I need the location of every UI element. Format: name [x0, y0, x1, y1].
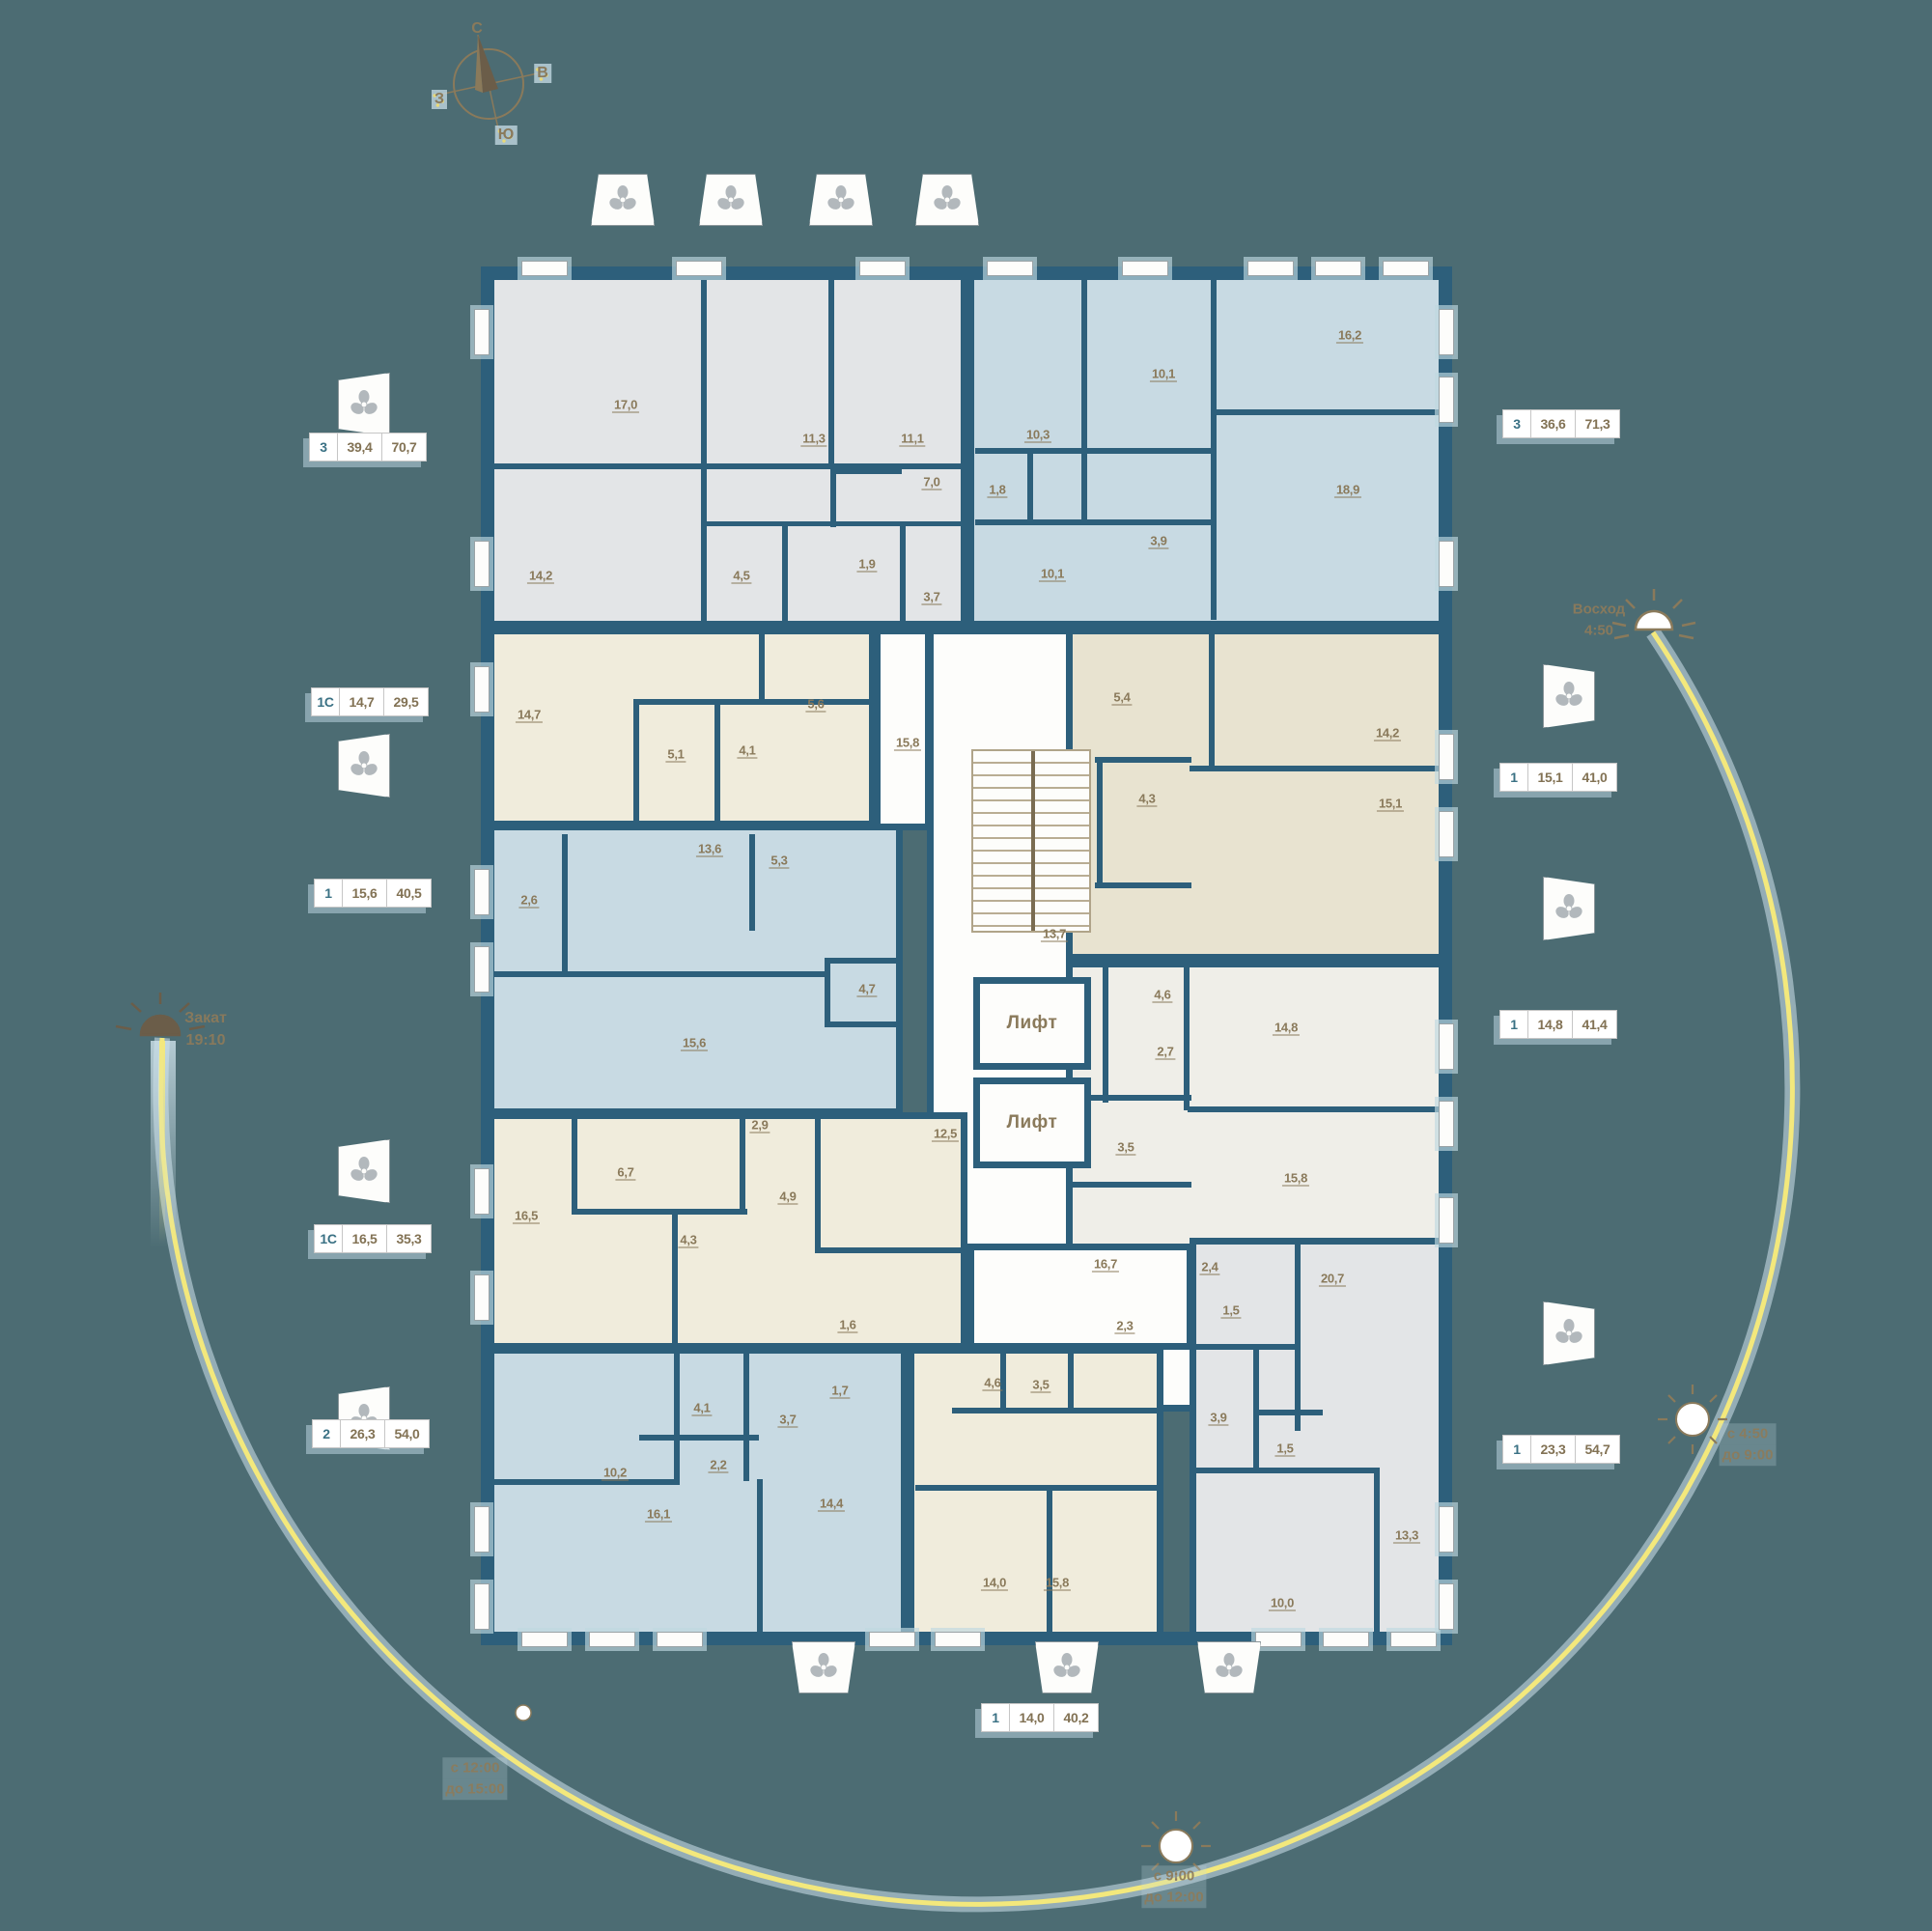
- room-area-label: 14,4: [818, 1497, 845, 1512]
- room-area-label: 14,7: [516, 709, 543, 723]
- apartment-type-label: 1С: [315, 1225, 342, 1252]
- living-area-value: 39,4: [337, 434, 381, 461]
- apartment-badge: 114,841,4: [1499, 1010, 1617, 1039]
- room-area-label: 15,8: [1282, 1172, 1309, 1187]
- window: [1122, 261, 1168, 276]
- fan-icon: [1543, 877, 1595, 940]
- window: [474, 869, 490, 915]
- apartment-type-label: 1: [1500, 764, 1527, 791]
- room-area-label: 4,7: [856, 983, 877, 997]
- window: [987, 261, 1033, 276]
- total-area-value: 40,2: [1053, 1704, 1098, 1731]
- window: [474, 666, 490, 713]
- fan-icon: [792, 1641, 855, 1693]
- apartment-type-label: 1: [315, 880, 342, 907]
- room-area-label: 2,6: [518, 894, 539, 909]
- total-area-value: 71,3: [1575, 410, 1619, 437]
- window: [474, 1583, 490, 1630]
- floor-plan-canvas: ЛифтЛифт17,011,311,17,014,24,51,93,710,3…: [0, 0, 1932, 1931]
- room-area-label: 4,3: [1136, 793, 1157, 807]
- window: [1383, 261, 1429, 276]
- apartment-type-label: 1С: [312, 688, 339, 715]
- fan-icon: [1035, 1641, 1099, 1693]
- compass-south-label: Ю: [495, 126, 518, 145]
- living-area-value: 36,6: [1530, 410, 1575, 437]
- room-area-label: 14,2: [527, 570, 554, 584]
- total-area-value: 54,0: [384, 1420, 429, 1447]
- room-area-label: 3,7: [921, 591, 941, 605]
- fan-icon: [338, 373, 390, 436]
- room-area-label: 10,1: [1039, 568, 1066, 582]
- room-area-label: 5,1: [665, 748, 686, 763]
- apartment-type-label: 1: [1503, 1436, 1530, 1463]
- window: [1439, 1197, 1454, 1244]
- room-area-label: 4,9: [777, 1190, 798, 1205]
- room-area-label: 14,0: [981, 1577, 1008, 1591]
- total-area-value: 41,0: [1572, 764, 1616, 791]
- room-area-label: 2,7: [1155, 1046, 1175, 1060]
- room-area-label: 11,1: [899, 433, 925, 447]
- living-area-value: 23,3: [1530, 1436, 1575, 1463]
- room-area-label: 5,4: [1111, 691, 1132, 706]
- room-area-label: 16,2: [1336, 329, 1363, 344]
- room-area-label: 1,7: [829, 1385, 850, 1399]
- window: [869, 1632, 915, 1647]
- room-area-label: 5,6: [805, 698, 826, 713]
- room-area-label: 16,1: [645, 1508, 672, 1523]
- apartment-badge: 1С16,535,3: [314, 1224, 432, 1253]
- apartment-type-label: 1: [1500, 1011, 1527, 1038]
- sun-interval-morning: с 4:50до 9:00: [1720, 1423, 1777, 1466]
- apartment-type-label: 3: [1503, 410, 1530, 437]
- apartment-badge: 115,640,5: [314, 879, 432, 908]
- fan-icon: [1543, 664, 1595, 728]
- room-area-label: 1,5: [1220, 1304, 1241, 1319]
- fan-icon: [699, 174, 763, 226]
- total-area-value: 29,5: [383, 688, 428, 715]
- total-area-value: 54,7: [1575, 1436, 1619, 1463]
- window: [1439, 1583, 1454, 1630]
- room-area-label: 4,1: [691, 1402, 712, 1416]
- apartment-badge: 226,354,0: [312, 1419, 430, 1448]
- room-area-label: 10,1: [1150, 368, 1177, 382]
- window: [1255, 1632, 1302, 1647]
- room-area-label: 15,8: [1044, 1577, 1071, 1591]
- room-area-label: 4,6: [982, 1377, 1002, 1391]
- room-area-label: 10,2: [602, 1467, 629, 1481]
- total-area-value: 40,5: [386, 880, 431, 907]
- window: [1323, 1632, 1369, 1647]
- window: [1439, 1023, 1454, 1070]
- room-area-label: 1,9: [856, 558, 877, 573]
- room-area-label: 15,8: [894, 737, 921, 751]
- room-area-label: 17,0: [612, 399, 639, 413]
- room-area-label: 2,3: [1114, 1320, 1134, 1334]
- fan-icon: [809, 174, 873, 226]
- living-area-value: 15,1: [1527, 764, 1572, 791]
- window: [1247, 261, 1294, 276]
- room-area-label: 12,5: [932, 1128, 959, 1142]
- window: [1439, 1506, 1454, 1553]
- room-area-label: 16,7: [1092, 1258, 1119, 1273]
- window: [1439, 377, 1454, 423]
- window: [1439, 734, 1454, 780]
- apartment-badge: 115,141,0: [1499, 763, 1617, 792]
- apartment-badge: 339,470,7: [309, 433, 427, 462]
- window: [1439, 541, 1454, 587]
- compass-west-label: З: [432, 90, 447, 109]
- room-area-label: 16,5: [513, 1210, 540, 1224]
- room-area-label: 10,0: [1269, 1597, 1296, 1611]
- sunset-ray-glow: [151, 1041, 176, 1248]
- room-area-label: 1,5: [1274, 1442, 1295, 1457]
- total-area-value: 35,3: [386, 1225, 431, 1252]
- room-area-label: 20,7: [1319, 1273, 1346, 1287]
- living-area-value: 26,3: [340, 1420, 384, 1447]
- room-area-label: 4,1: [737, 744, 757, 759]
- sunset-label: Закат19:10: [184, 1007, 227, 1051]
- sunrise-label: Восход4:50: [1573, 599, 1625, 641]
- fan-icon: [1543, 1301, 1595, 1365]
- living-area-value: 14,7: [339, 688, 383, 715]
- room-area-label: 5,3: [769, 854, 789, 869]
- window: [1439, 309, 1454, 355]
- room-area-label: 1,8: [987, 484, 1007, 498]
- room-area-label: 3,9: [1208, 1412, 1228, 1426]
- window: [521, 1632, 568, 1647]
- room-area-label: 3,5: [1030, 1379, 1050, 1393]
- fan-icon: [915, 174, 979, 226]
- room-area-label: 2,4: [1199, 1261, 1219, 1275]
- apartment-badge: 114,040,2: [981, 1703, 1099, 1732]
- fan-icon: [338, 1139, 390, 1203]
- room-area-label: 7,0: [921, 476, 941, 490]
- fan-icon: [1197, 1641, 1261, 1693]
- living-area-value: 14,0: [1009, 1704, 1053, 1731]
- window: [676, 261, 722, 276]
- window: [1390, 1632, 1437, 1647]
- window: [657, 1632, 703, 1647]
- room-area-label: 2,2: [708, 1459, 728, 1473]
- window: [474, 946, 490, 993]
- room-area-label: 13,7: [1041, 928, 1068, 942]
- apartment-badge: 1С14,729,5: [311, 687, 429, 716]
- compass-east-label: В: [534, 64, 551, 83]
- room-area-label: 6,7: [615, 1166, 635, 1181]
- apartment-badge: 123,354,7: [1502, 1435, 1620, 1464]
- room-area-label: 4,5: [731, 570, 751, 584]
- room-area-label: 18,9: [1334, 484, 1361, 498]
- sun-interval-afternoon: с 12:00до 15:00: [442, 1757, 507, 1800]
- window: [589, 1632, 635, 1647]
- fan-icon: [591, 174, 655, 226]
- room-area-label: 3,9: [1148, 535, 1168, 549]
- compass-north-label: С: [468, 19, 486, 39]
- room-area-label: 13,3: [1393, 1529, 1420, 1544]
- room-area-label: 14,8: [1273, 1021, 1300, 1036]
- apartment-type-label: 3: [310, 434, 337, 461]
- building-outer-wall: [481, 266, 1452, 1645]
- window: [859, 261, 906, 276]
- window: [521, 261, 568, 276]
- sunset-ray: [159, 1041, 165, 1244]
- window: [474, 309, 490, 355]
- window: [935, 1632, 981, 1647]
- apartment-badge: 336,671,3: [1502, 409, 1620, 438]
- sun-interval-midday: с 9:00до 12:00: [1141, 1865, 1206, 1908]
- apartment-type-label: 1: [982, 1704, 1009, 1731]
- apartment-type-label: 2: [313, 1420, 340, 1447]
- room-area-label: 3,5: [1115, 1141, 1135, 1156]
- room-area-label: 4,6: [1152, 989, 1172, 1003]
- living-area-value: 15,6: [342, 880, 386, 907]
- window: [1315, 261, 1361, 276]
- sun-dot-icon: [516, 1705, 531, 1721]
- living-area-value: 16,5: [342, 1225, 386, 1252]
- window: [474, 1506, 490, 1553]
- window: [1439, 811, 1454, 857]
- window: [474, 541, 490, 587]
- total-area-value: 70,7: [381, 434, 426, 461]
- room-area-label: 1,6: [837, 1319, 857, 1333]
- room-area-label: 15,6: [681, 1037, 708, 1051]
- window: [474, 1168, 490, 1215]
- compass-icon: [439, 35, 538, 133]
- window: [474, 1274, 490, 1321]
- window: [1439, 1101, 1454, 1147]
- room-area-label: 13,6: [696, 843, 723, 857]
- room-area-label: 2,9: [749, 1119, 770, 1133]
- room-area-label: 11,3: [800, 433, 826, 447]
- total-area-value: 41,4: [1572, 1011, 1616, 1038]
- room-area-label: 15,1: [1377, 798, 1404, 812]
- fan-icon: [338, 734, 390, 798]
- room-area-label: 10,3: [1024, 429, 1051, 443]
- living-area-value: 14,8: [1527, 1011, 1572, 1038]
- room-area-label: 14,2: [1374, 727, 1401, 742]
- room-area-label: 4,3: [678, 1234, 698, 1248]
- sun-icon: [1658, 1385, 1727, 1454]
- room-area-label: 3,7: [777, 1413, 798, 1428]
